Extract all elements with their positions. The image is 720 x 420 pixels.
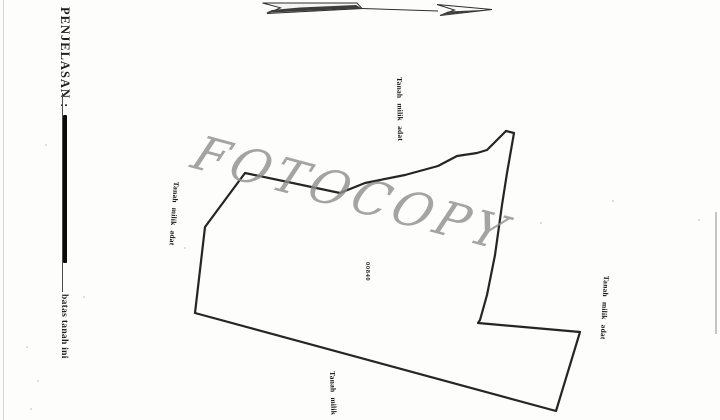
- adjacent-parcel-label-bottom: Tanah milik: [328, 371, 339, 415]
- north-arrow-icon: [263, 3, 493, 16]
- parcel-number: 00840: [364, 262, 371, 281]
- scanned-land-map-page: PENJELASAN : batas tanah ini FOTOCOPY Ta…: [0, 0, 720, 420]
- adjacent-parcel-label-top: Tanah milik adat: [395, 77, 405, 141]
